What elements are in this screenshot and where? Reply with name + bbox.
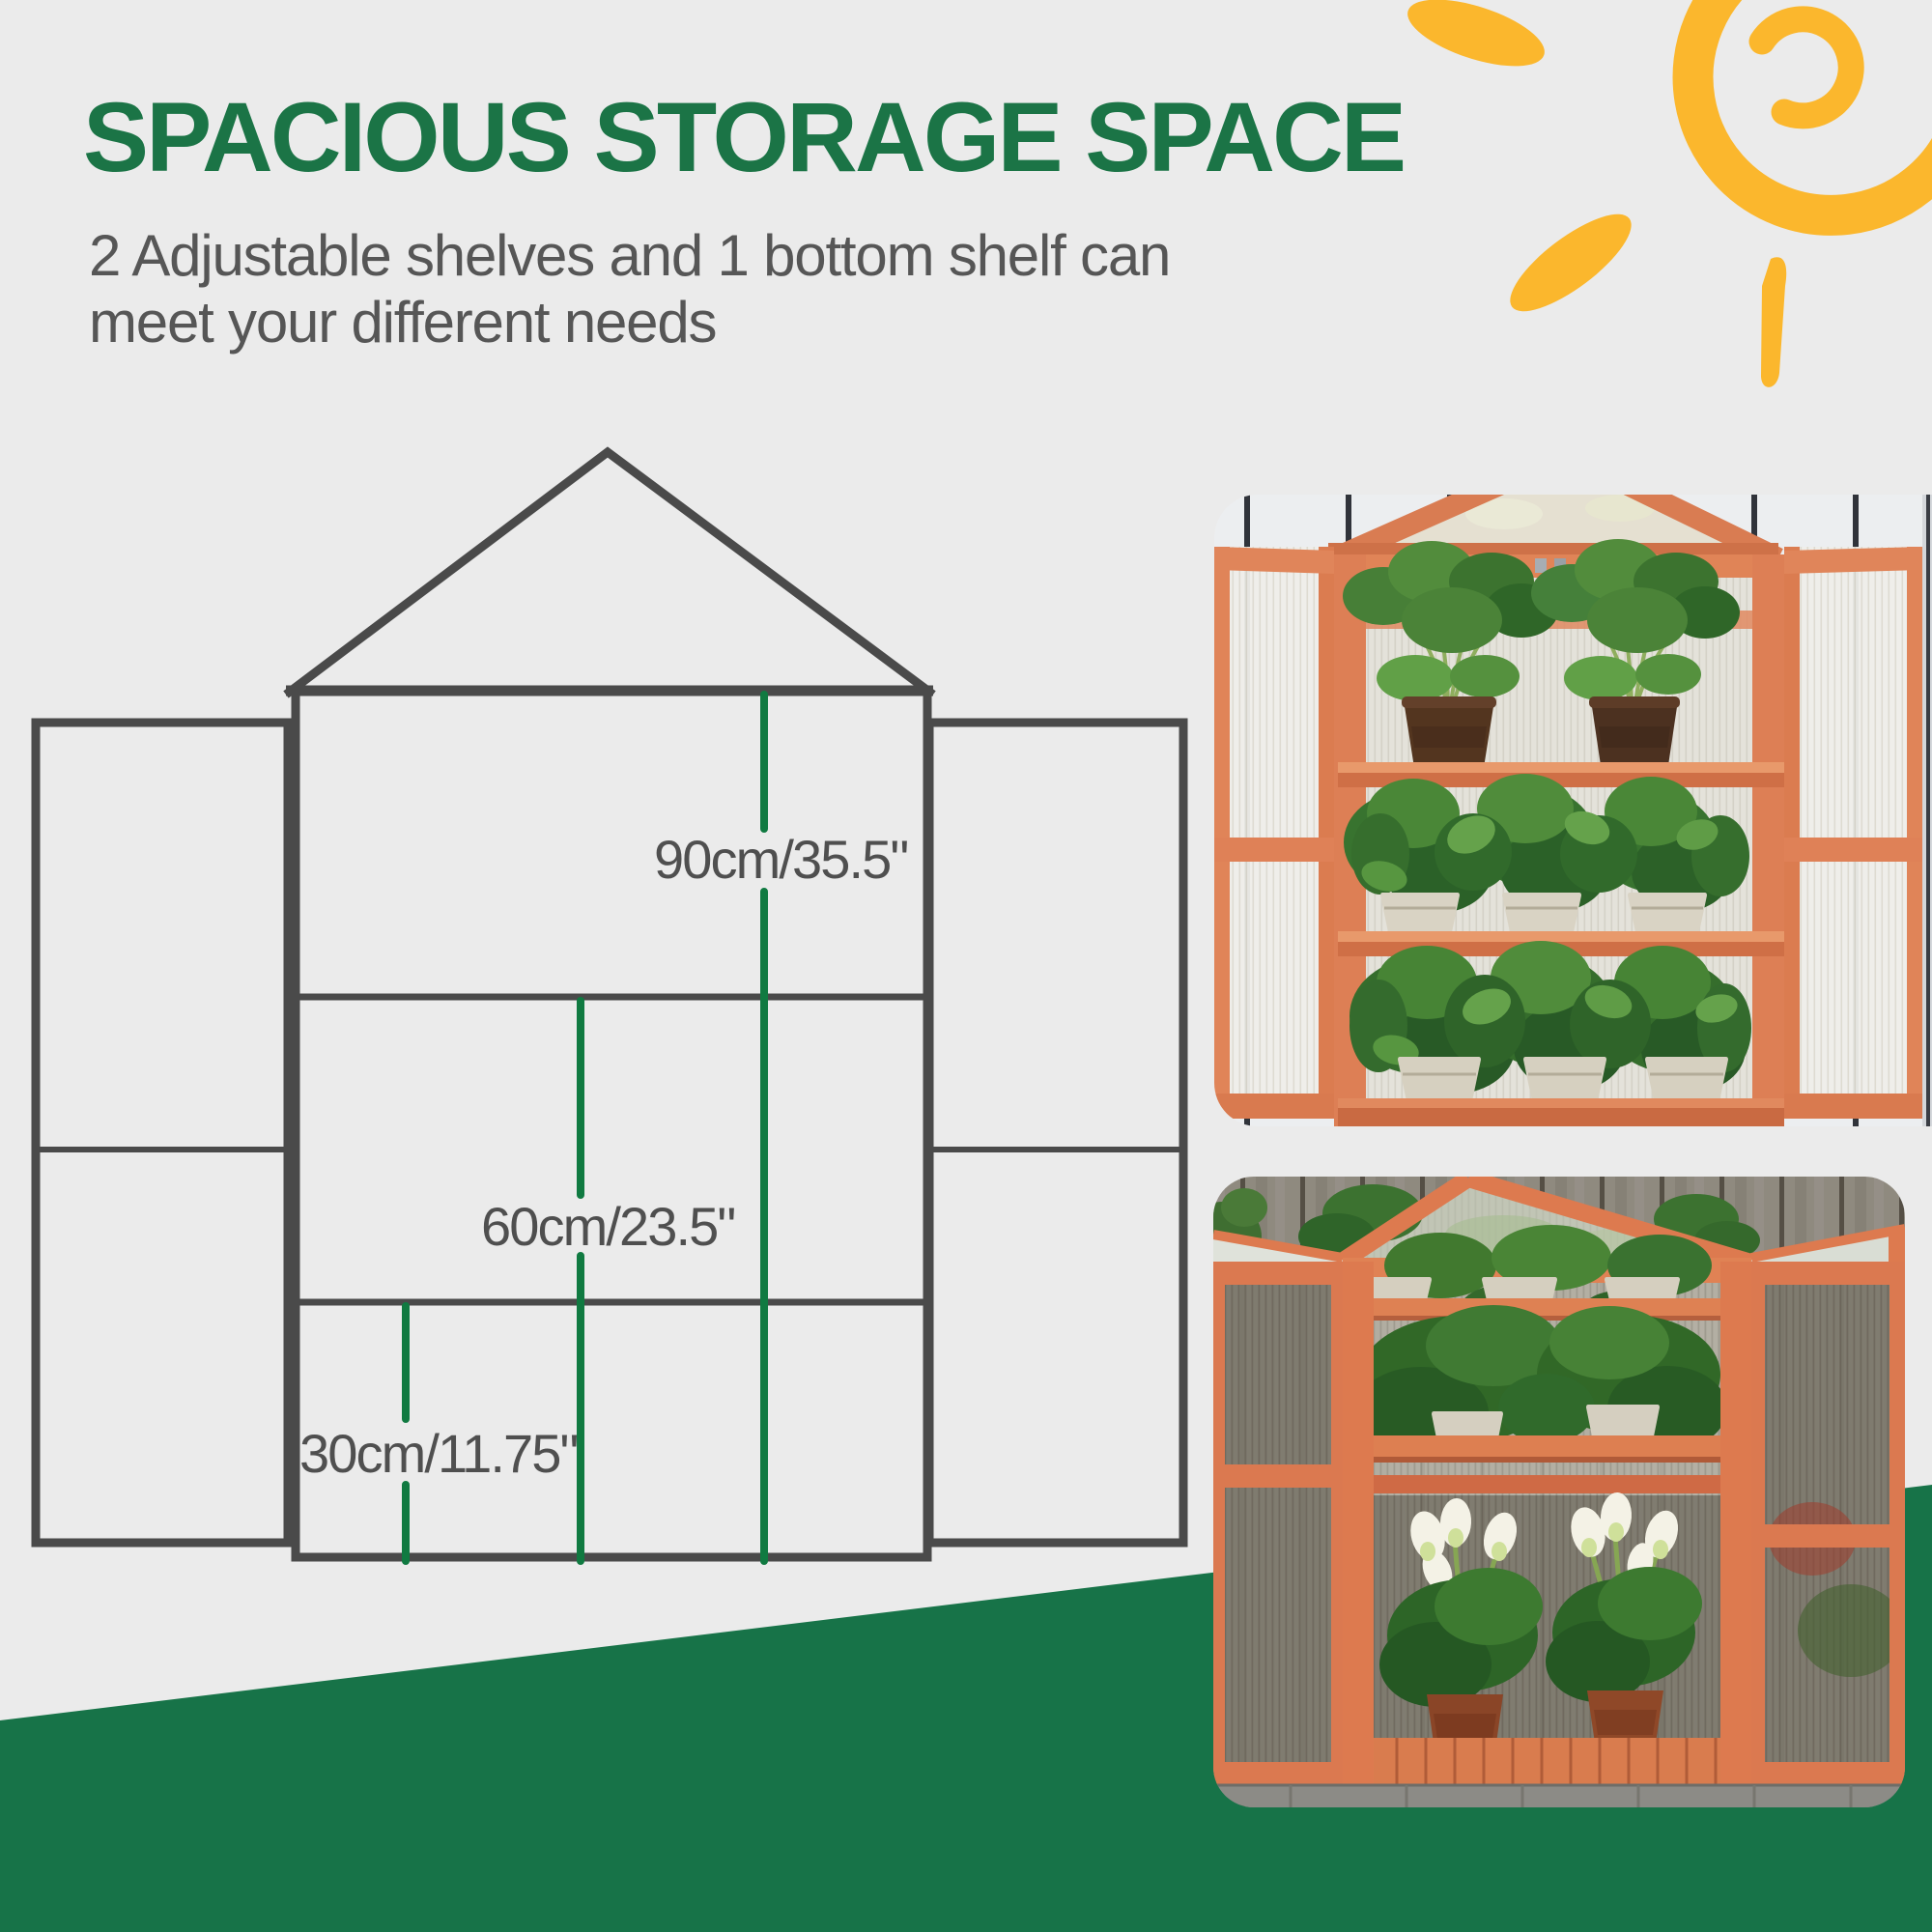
svg-text:60cm/23.5": 60cm/23.5" (481, 1196, 734, 1257)
svg-text:30cm/11.75": 30cm/11.75" (299, 1423, 577, 1484)
svg-text:90cm/35.5": 90cm/35.5" (654, 829, 907, 890)
